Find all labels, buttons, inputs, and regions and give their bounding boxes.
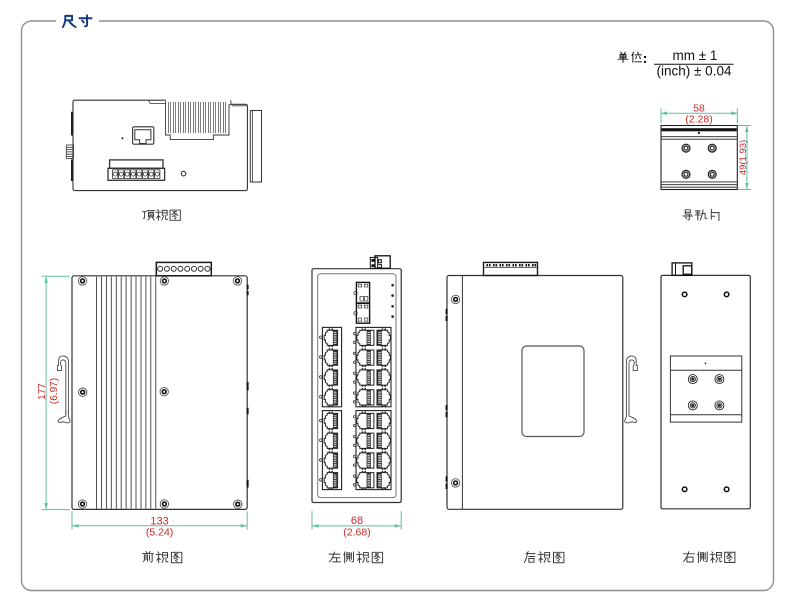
svg-text:mm ± 1: mm ± 1 <box>673 48 718 63</box>
svg-text:68: 68 <box>351 515 363 527</box>
svg-text:(2.28): (2.28) <box>685 113 712 125</box>
svg-text:49(1.93): 49(1.93) <box>738 140 749 175</box>
svg-text:(5.24): (5.24) <box>146 526 173 538</box>
svg-text:(2.68): (2.68) <box>343 527 370 539</box>
svg-text:177: 177 <box>37 383 48 400</box>
svg-text:(inch) ± 0.04: (inch) ± 0.04 <box>657 64 732 79</box>
svg-text:(6.97): (6.97) <box>49 378 60 404</box>
